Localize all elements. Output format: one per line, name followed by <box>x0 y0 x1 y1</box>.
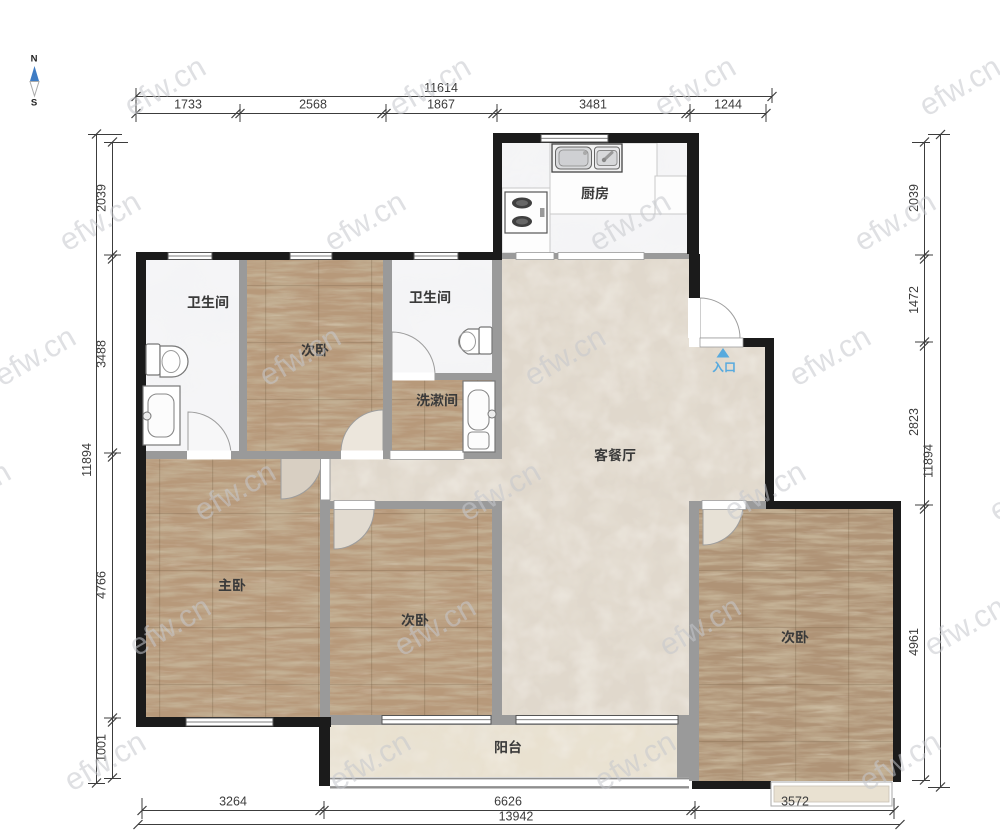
svg-text:6626: 6626 <box>494 795 522 809</box>
svg-text:2568: 2568 <box>299 98 327 112</box>
svg-text:3488: 3488 <box>95 340 109 368</box>
svg-text:1733: 1733 <box>174 98 202 112</box>
svg-text:13942: 13942 <box>499 810 534 824</box>
svg-text:S: S <box>31 98 37 109</box>
svg-text:2823: 2823 <box>907 408 921 436</box>
svg-text:1244: 1244 <box>714 98 742 112</box>
svg-text:3264: 3264 <box>219 795 247 809</box>
svg-text:3481: 3481 <box>579 98 607 112</box>
svg-text:1472: 1472 <box>907 286 921 314</box>
svg-text:N: N <box>31 54 38 65</box>
svg-text:3572: 3572 <box>781 795 809 809</box>
svg-text:4766: 4766 <box>95 571 109 599</box>
svg-text:11894: 11894 <box>922 444 936 478</box>
svg-text:11894: 11894 <box>80 443 94 477</box>
